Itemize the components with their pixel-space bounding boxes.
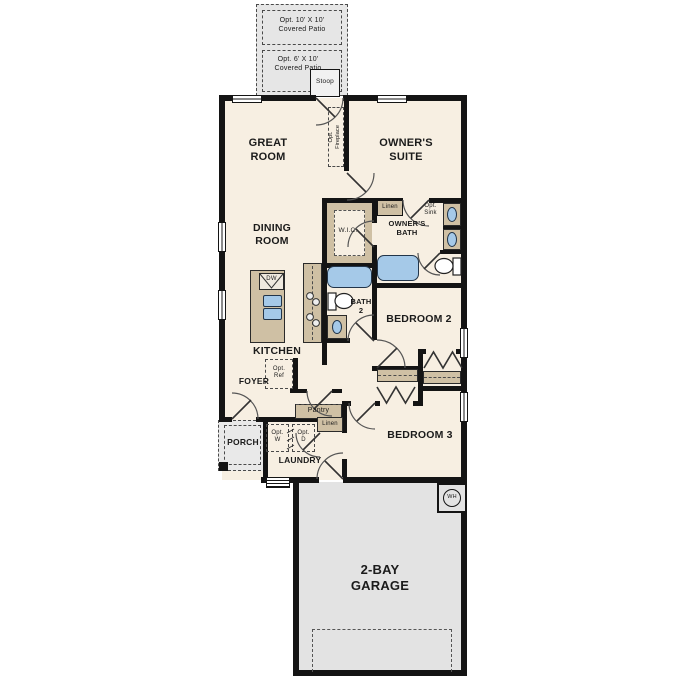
window: [460, 392, 468, 422]
wall: [219, 95, 225, 421]
wall: [293, 358, 298, 392]
wall: [344, 101, 349, 171]
wall: [332, 389, 342, 393]
window: [377, 95, 407, 103]
sink: [447, 232, 457, 247]
garage-door-outline: [312, 629, 452, 672]
wall: [219, 417, 232, 422]
window: [232, 95, 262, 103]
optional-ref-label: Opt.Ref: [265, 366, 293, 380]
optional-dryer-label: Opt.D: [292, 430, 315, 444]
pantry-rod: [296, 404, 341, 405]
optional-sink-label: Opt.Sink: [420, 203, 441, 217]
room-label-garage: 2-BAYGARAGE: [330, 562, 430, 595]
wall: [440, 250, 461, 254]
floor-plan: Opt. 10' X 10'Covered Patio Opt. 6' X 10…: [0, 0, 687, 687]
closet-rod: [424, 377, 460, 378]
wall: [375, 401, 380, 406]
room-label-owners-suite: OWNER'SSUITE: [365, 137, 447, 165]
island-sink-basin: [263, 295, 282, 307]
optional-fireplace-label: Opt.Fireplace: [328, 107, 344, 167]
patio-10x10-label: Opt. 10' X 10'Covered Patio: [262, 17, 342, 35]
window: [460, 328, 468, 358]
wall: [418, 386, 466, 391]
room-label-dining: DININGROOM: [237, 222, 307, 248]
room-label-great-room: GREATROOM: [228, 137, 308, 165]
garage-steps: [266, 477, 290, 488]
linen-bath-label: Linen: [377, 204, 403, 212]
room-label-owners-bath: OWNER'SBATH: [384, 219, 430, 238]
bath2-sink: [332, 320, 342, 334]
window: [218, 222, 226, 252]
wall: [290, 389, 307, 393]
room-label-laundry: LAUNDRY: [268, 455, 332, 466]
room-label-bedroom2: BEDROOM 2: [377, 313, 461, 326]
counter-dash-line: [312, 266, 313, 340]
pantry-label: Pantry: [295, 407, 342, 416]
sink-optional: [447, 207, 457, 222]
closet-rod: [378, 375, 417, 376]
wall: [418, 349, 426, 354]
window: [218, 290, 226, 320]
room-label-kitchen: KITCHEN: [240, 345, 314, 358]
wall: [342, 459, 347, 477]
dishwasher-label: DW: [259, 276, 284, 284]
water-heater-label: WH: [443, 494, 461, 501]
bath2-tub: [327, 266, 372, 288]
island-sink-basin: [263, 308, 282, 320]
wall: [413, 401, 420, 406]
room-label-bedroom3: BEDROOM 3: [378, 429, 462, 442]
porch-post: [219, 462, 228, 471]
wall: [375, 283, 461, 288]
wall: [342, 401, 351, 406]
stoop-label: Stoop: [310, 78, 340, 86]
wall: [322, 343, 327, 365]
wall: [293, 483, 299, 676]
room-label-porch: PORCH: [222, 437, 264, 448]
room-label-bath2: BATH2: [345, 297, 377, 316]
owners-tub: [377, 255, 419, 281]
optional-washer-label: Opt.W: [266, 430, 289, 444]
linen-laundry-label: Linen: [317, 421, 343, 429]
room-label-wic: W.I.C.: [330, 227, 366, 235]
